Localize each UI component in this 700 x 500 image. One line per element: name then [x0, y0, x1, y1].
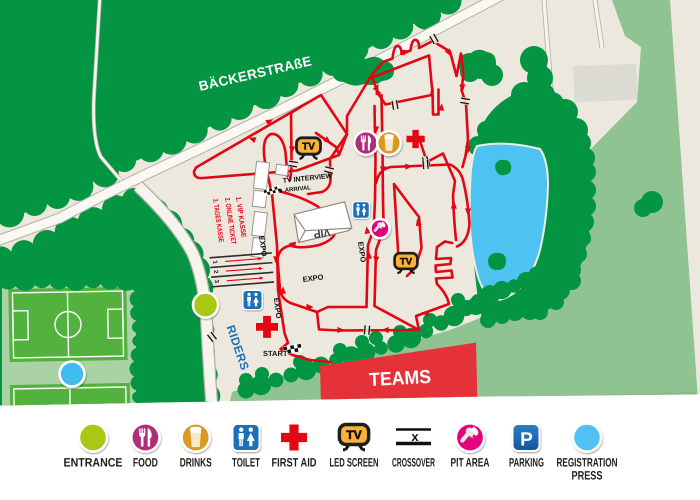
svg-text:ENTRANCE: ENTRANCE — [64, 455, 123, 469]
svg-text:TV: TV — [400, 257, 412, 267]
svg-text:LED SCREEN: LED SCREEN — [330, 455, 379, 469]
svg-text:FOOD: FOOD — [133, 455, 158, 469]
svg-text:PIT AREA: PIT AREA — [451, 455, 490, 469]
svg-text:CROSSOVER: CROSSOVER — [392, 455, 435, 469]
svg-text:PRESS: PRESS — [572, 469, 603, 483]
svg-text:PARKING: PARKING — [509, 455, 544, 469]
svg-text:TEAMS: TEAMS — [369, 367, 432, 391]
svg-text:FIRST AID: FIRST AID — [272, 455, 317, 469]
svg-text:TOILET: TOILET — [232, 455, 260, 469]
svg-text:VIP: VIP — [313, 226, 331, 240]
svg-text:x: x — [411, 429, 419, 444]
svg-text:P: P — [520, 430, 533, 451]
svg-text:TV: TV — [346, 429, 362, 442]
svg-text:START: START — [263, 349, 288, 358]
svg-text:REGISTRATION: REGISTRATION — [557, 455, 618, 469]
svg-text:TV: TV — [302, 142, 315, 153]
svg-text:DRINKS: DRINKS — [180, 455, 212, 469]
